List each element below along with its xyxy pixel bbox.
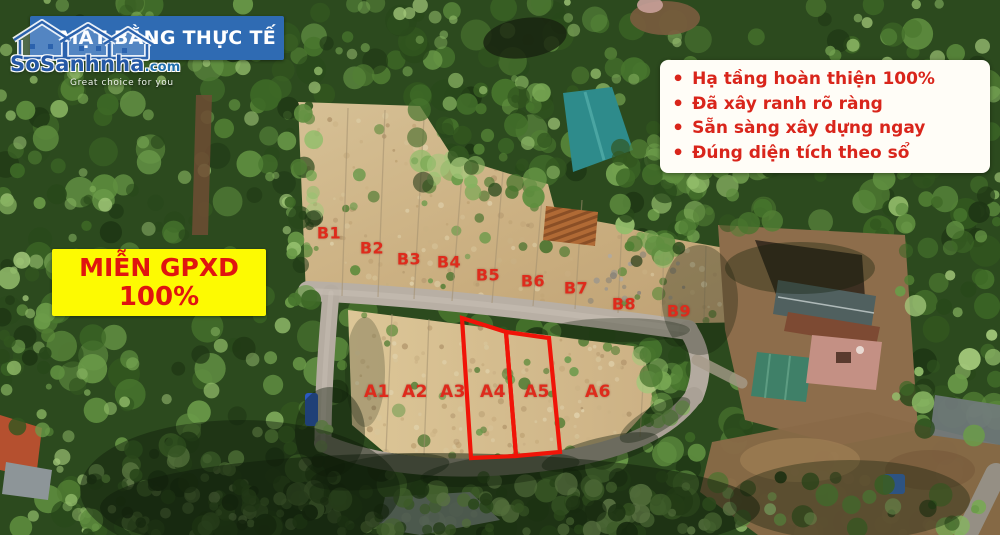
feature-text: Đúng diện tích theo sổ	[692, 145, 909, 162]
features-callout: •Hạ tầng hoàn thiện 100%•Đã xây ranh rõ …	[660, 60, 990, 173]
badge-line2: 100%	[119, 283, 199, 312]
plot-label-a5: A5	[524, 382, 550, 402]
bullet-dot: •	[672, 70, 684, 89]
feature-item: •Hạ tầng hoàn thiện 100%	[672, 70, 978, 89]
permit-badge: MIỄN GPXD 100%	[52, 249, 266, 316]
feature-item: •Đúng diện tích theo sổ	[672, 144, 978, 163]
brand-logo: SoSanhnha.com Great choice for you	[6, 8, 166, 100]
brand-tagline: Great choice for you	[70, 78, 174, 88]
plot-label-a1: A1	[364, 382, 390, 402]
bullet-dot: •	[672, 95, 684, 114]
badge-line1: MIỄN GPXD	[79, 254, 239, 283]
plot-label-b3: B3	[397, 250, 421, 269]
brand-domain: .com	[145, 60, 181, 75]
plot-label-b8: B8	[612, 295, 636, 314]
feature-text: Hạ tầng hoàn thiện 100%	[692, 71, 935, 88]
plot-label-a2: A2	[402, 382, 428, 402]
aerial-site-photo: B1B2B3B4B5B6B7B8B9A1A2A3A4A5A6 MẶT BẰNG …	[0, 0, 1000, 535]
brand-name: SoSanhnha.com	[10, 52, 181, 76]
plot-label-a6: A6	[585, 382, 611, 402]
plot-label-b6: B6	[521, 272, 545, 291]
plot-label-b4: B4	[437, 253, 461, 272]
bullet-dot: •	[672, 144, 684, 163]
plot-label-a4: A4	[480, 382, 506, 402]
plot-label-a3: A3	[440, 382, 466, 402]
plot-label-b2: B2	[360, 239, 384, 258]
feature-text: Đã xây ranh rõ ràng	[692, 96, 883, 113]
plot-label-b7: B7	[564, 279, 588, 298]
plot-label-b9: B9	[667, 302, 691, 321]
bullet-dot: •	[672, 119, 684, 138]
plot-label-b1: B1	[317, 224, 341, 243]
feature-item: •Sẵn sàng xây dựng ngay	[672, 119, 978, 138]
plot-label-b5: B5	[476, 266, 500, 285]
brand-text: SoSanhnha	[10, 52, 145, 76]
feature-text: Sẵn sàng xây dựng ngay	[692, 120, 925, 137]
feature-item: •Đã xây ranh rõ ràng	[672, 95, 978, 114]
